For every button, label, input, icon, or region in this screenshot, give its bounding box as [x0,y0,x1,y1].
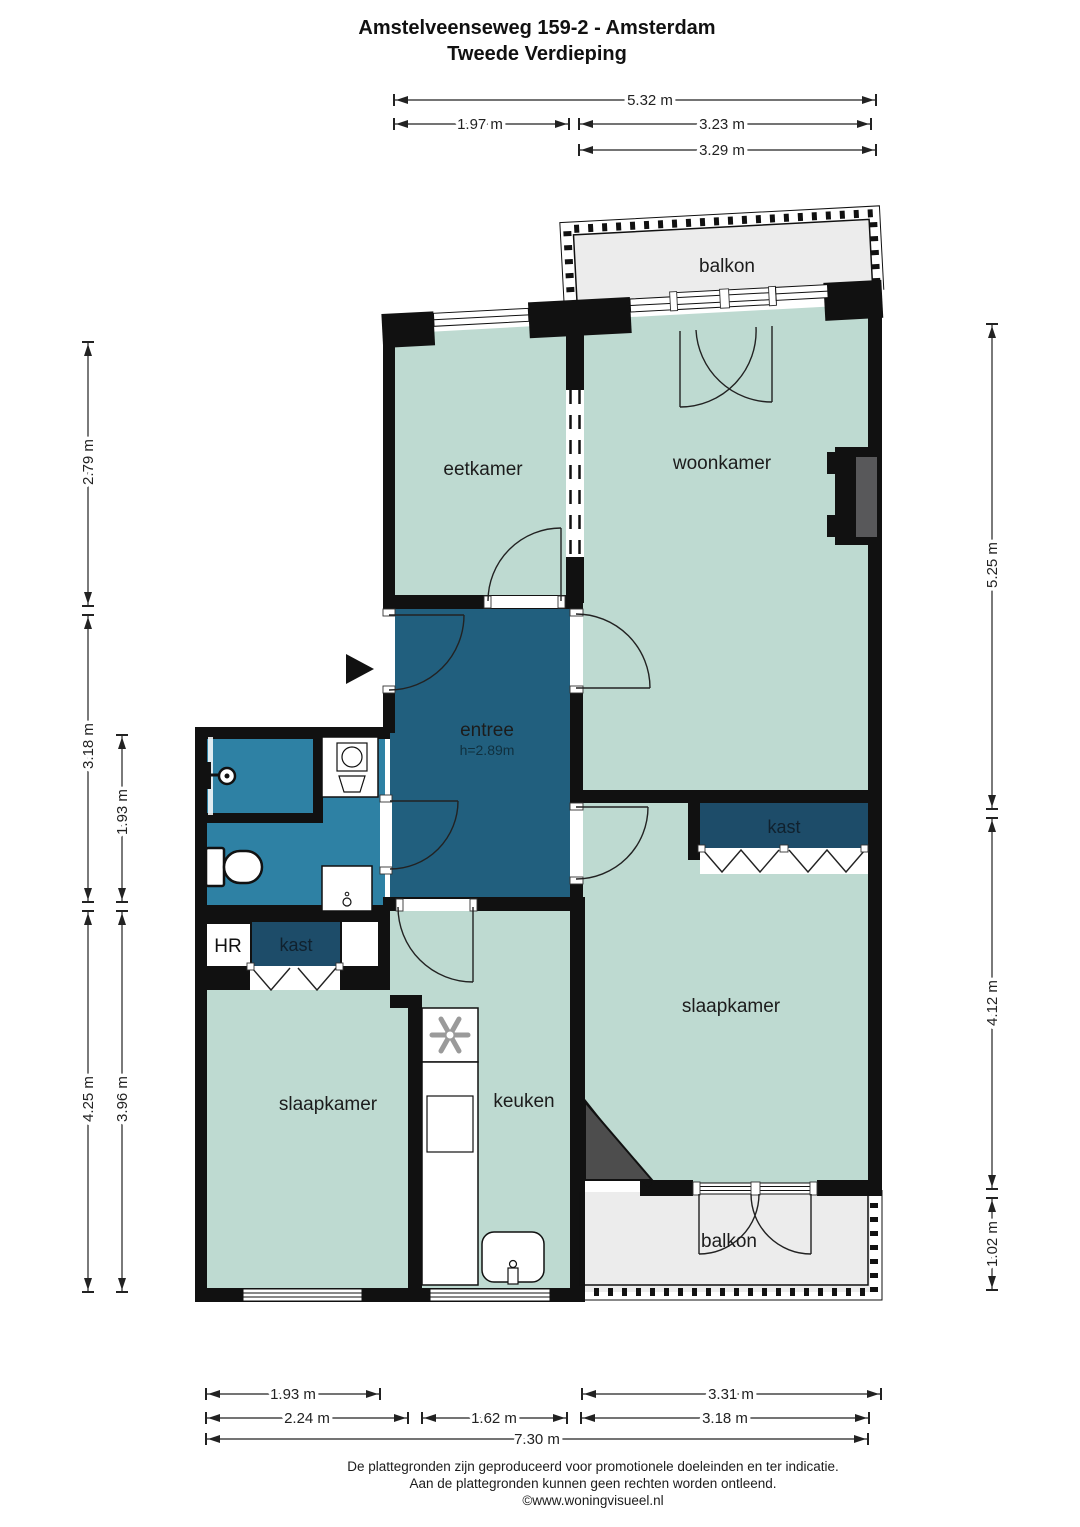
dim-right-2: 4.12 m [984,980,1001,1026]
label-entree: entree [460,720,514,741]
dimensions-left: 2.79 m 3.18 m 4.25 m 1.93 m 3.96 m [80,341,131,1293]
label-kast-left: kast [279,935,312,955]
window-slaapkamer-left-bottom [243,1289,362,1301]
dim-bottom-r1-left: 1.93 m [270,1386,316,1403]
dim-left-inner-2: 3.96 m [114,1076,131,1122]
entrance-arrow-icon [346,654,374,684]
dim-right-1: 5.25 m [984,542,1001,588]
footer: De plattegronden zijn geproduceerd voor … [347,1459,839,1508]
window-woonkamer-left [630,297,675,312]
sink-icon [482,1232,544,1284]
dim-top-total: 5.32 m [627,92,673,109]
label-keuken: keuken [493,1091,554,1112]
label-kast-right: kast [767,817,800,837]
dim-bottom-total: 7.30 m [514,1431,560,1448]
label-slaapkamer-right: slaapkamer [682,996,781,1017]
toilet-icon [206,848,262,886]
window-eetkamer-top [433,308,529,326]
label-eetkamer: eetkamer [443,459,523,480]
room-woonkamer [576,304,876,797]
label-balkon-bottom: balkon [701,1231,757,1252]
title-line1: Amstelveenseweg 159-2 - Amsterdam [358,17,715,39]
floorplan-canvas: Amstelveenseweg 159-2 - Amsterdam Tweede… [0,0,1080,1527]
dim-left-2: 3.18 m [80,723,97,769]
open-connection-dashed [566,390,584,557]
kast-right-bifold-doors [698,845,868,874]
dim-top-balkon: 3.29 m [699,142,745,159]
washing-machine-icon [322,737,378,797]
window-keuken-bottom [430,1289,550,1301]
dim-right-3: 1.02 m [984,1221,1001,1267]
dimensions-top: 5.32 m 1.97 m 3.23 m 3.29 m [393,92,877,159]
title-line2: Tweede Verdieping [447,43,627,65]
label-balkon-top: balkon [699,256,755,277]
page-title: Amstelveenseweg 159-2 - Amsterdam Tweede… [358,17,715,65]
footer-line2: Aan de plattegronden kunnen geen rechten… [409,1476,776,1491]
label-entree-height: h=2.89m [460,742,515,758]
dim-bottom-r2-3: 3.18 m [702,1410,748,1427]
dim-left-inner-1: 1.93 m [114,789,131,835]
dim-top-left: 1.97 m [457,116,503,133]
dimensions-right: 5.25 m 4.12 m 1.02 m [984,323,1001,1291]
footer-line1: De plattegronden zijn geproduceerd voor … [347,1459,839,1474]
kast-left-niche [342,922,378,966]
dim-bottom-r1-right: 3.31 m [708,1386,754,1403]
floorplan-page: Amstelveenseweg 159-2 - Amsterdam Tweede… [0,0,1080,1527]
footer-line3: ©www.woningvisueel.nl [522,1493,663,1508]
label-woonkamer: woonkamer [672,453,772,474]
label-slaapkamer-left: slaapkamer [279,1094,378,1115]
dimensions-bottom: 1.93 m 3.31 m 2.24 m 1.62 m 3.18 m 7.30 … [205,1386,882,1448]
kitchen-counter [422,1008,478,1285]
dim-top-right: 3.23 m [699,116,745,133]
dim-bottom-r2-1: 2.24 m [284,1410,330,1427]
dim-left-1: 2.79 m [80,439,97,485]
dim-left-3: 4.25 m [80,1076,97,1122]
kast-left-bifold-doors [247,963,343,990]
dim-bottom-r2-2: 1.62 m [471,1410,517,1427]
window-woonkamer-right [776,285,829,301]
room-slaapkamer-left [203,960,415,1292]
fixture-icon [322,866,372,911]
label-hr: HR [214,936,241,957]
